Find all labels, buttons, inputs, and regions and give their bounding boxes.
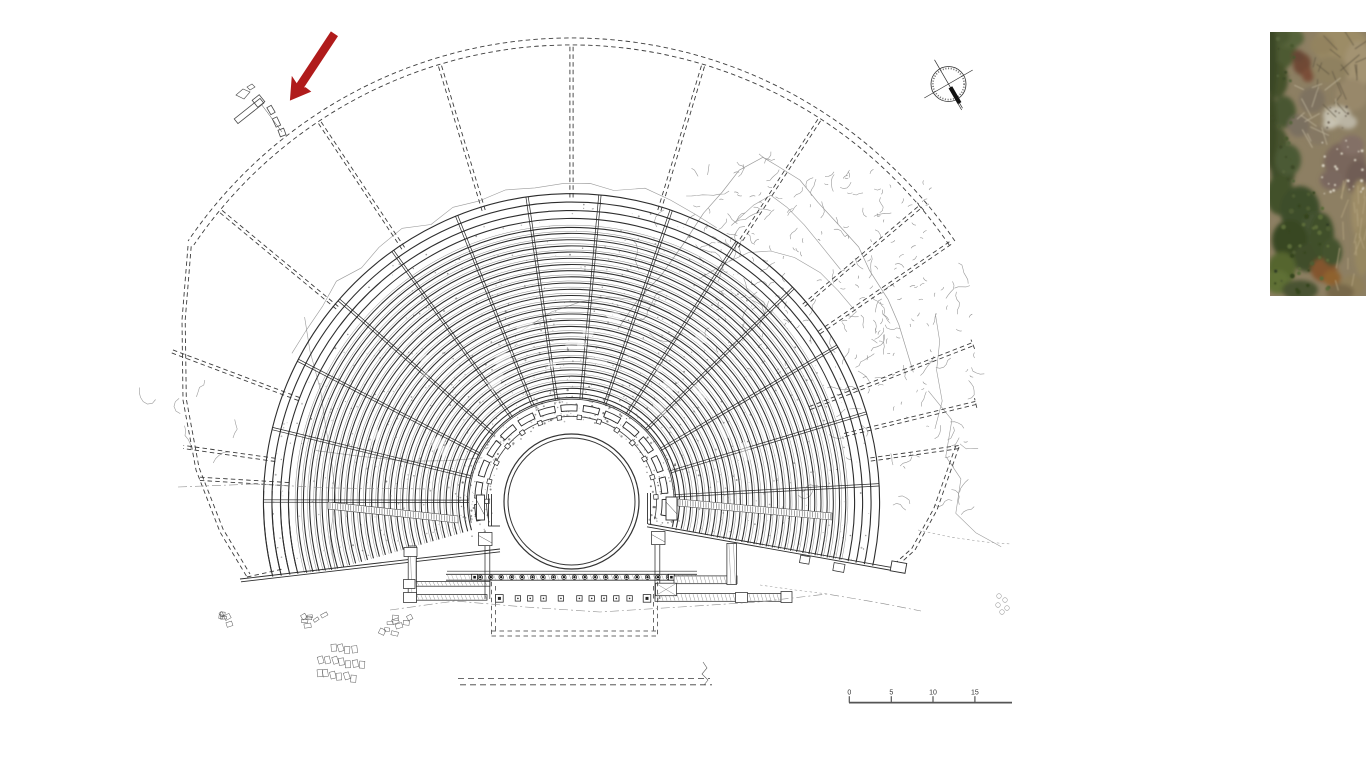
svg-text:15: 15	[971, 690, 979, 697]
svg-text:5: 5	[889, 690, 893, 697]
svg-text:10: 10	[929, 690, 937, 697]
svg-text:0: 0	[847, 690, 851, 697]
